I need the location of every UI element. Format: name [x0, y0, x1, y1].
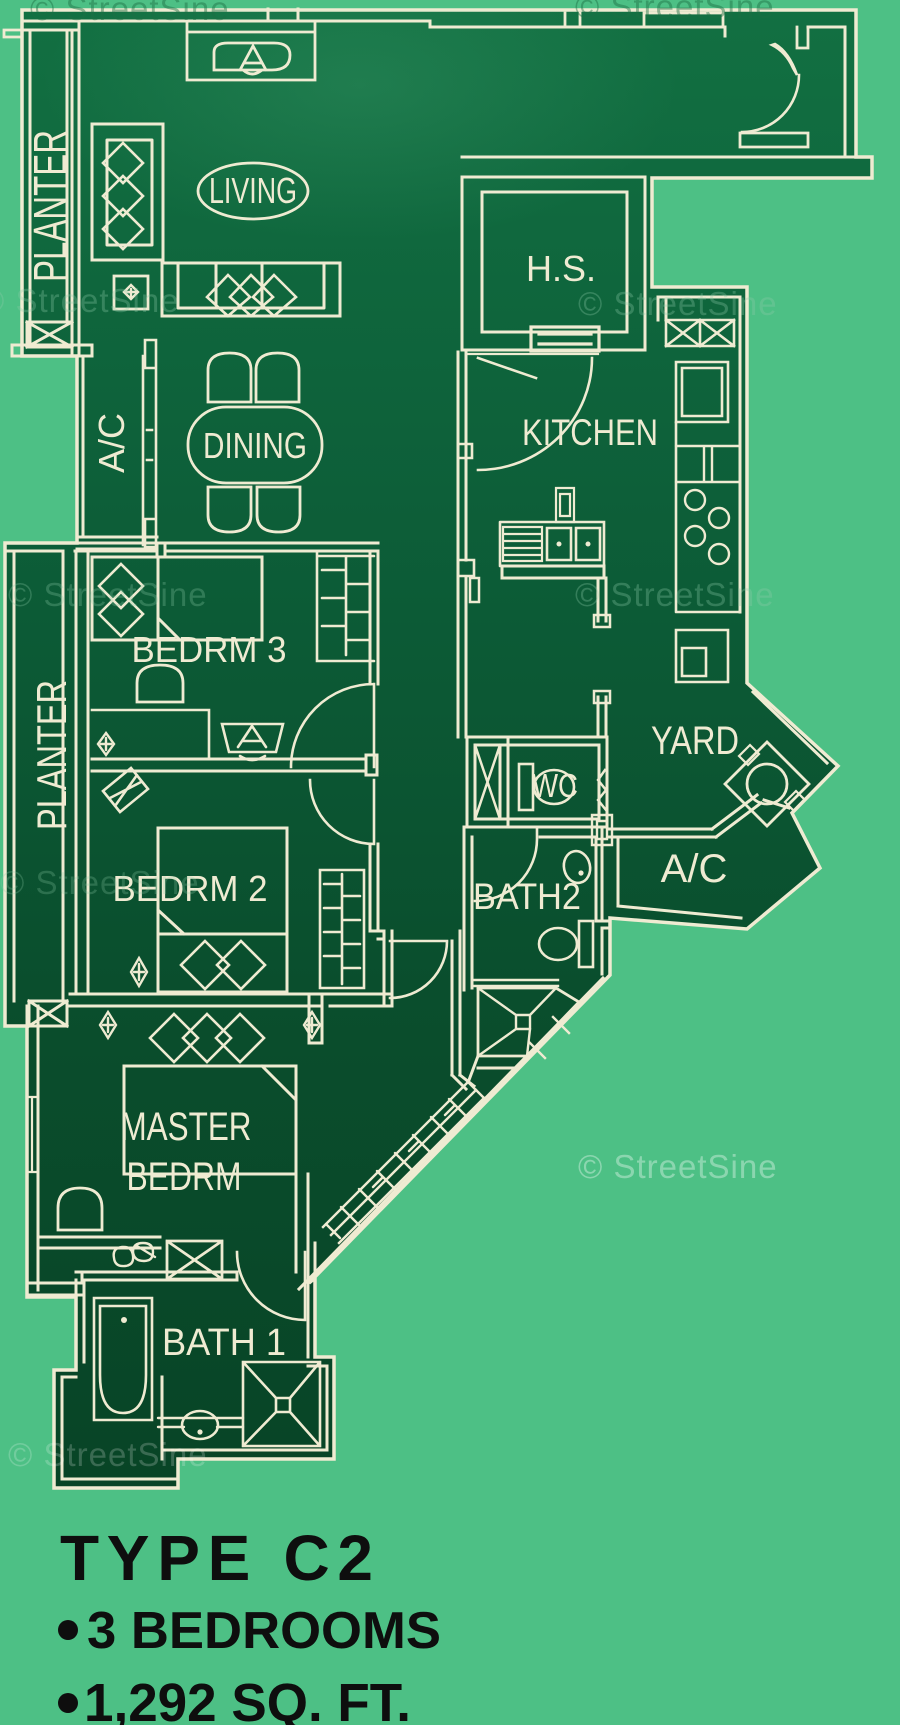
svg-text:© StreetSine: © StreetSine	[578, 285, 778, 322]
svg-text:PLANTER: PLANTER	[24, 130, 76, 282]
svg-text:MASTER: MASTER	[121, 1105, 252, 1149]
svg-text:BEDRM: BEDRM	[127, 1155, 242, 1199]
svg-text:DINING: DINING	[203, 425, 307, 466]
svg-text:© StreetSine: © StreetSine	[0, 864, 200, 901]
svg-text:© StreetSine: © StreetSine	[575, 576, 775, 613]
svg-text:H.S.: H.S.	[526, 248, 596, 289]
svg-text:© StreetSine: © StreetSine	[8, 576, 208, 613]
svg-text:© StreetSine: © StreetSine	[575, 0, 775, 25]
svg-text:© StreetSine: © StreetSine	[0, 282, 180, 319]
svg-text:BEDRM 3: BEDRM 3	[132, 629, 287, 670]
svg-text:© StreetSine: © StreetSine	[578, 1148, 778, 1185]
svg-text:A/C: A/C	[661, 847, 728, 891]
svg-text:1,292 SQ. FT.: 1,292 SQ. FT.	[84, 1673, 411, 1725]
svg-text:LIVING: LIVING	[209, 170, 297, 211]
svg-text:TYPE C2: TYPE C2	[60, 1522, 373, 1594]
svg-text:PLANTER: PLANTER	[28, 680, 75, 830]
svg-text:BATH 1: BATH 1	[162, 1322, 286, 1364]
svg-text:YARD: YARD	[651, 719, 739, 763]
svg-text:KITCHEN: KITCHEN	[522, 412, 658, 453]
svg-text:BATH2: BATH2	[473, 876, 581, 917]
svg-text:A/C: A/C	[91, 413, 132, 473]
svg-text:WC: WC	[532, 767, 578, 804]
svg-text:© StreetSine: © StreetSine	[30, 0, 230, 27]
svg-text:© StreetSine: © StreetSine	[8, 1436, 208, 1473]
svg-text:3 BEDROOMS: 3 BEDROOMS	[87, 1602, 441, 1660]
